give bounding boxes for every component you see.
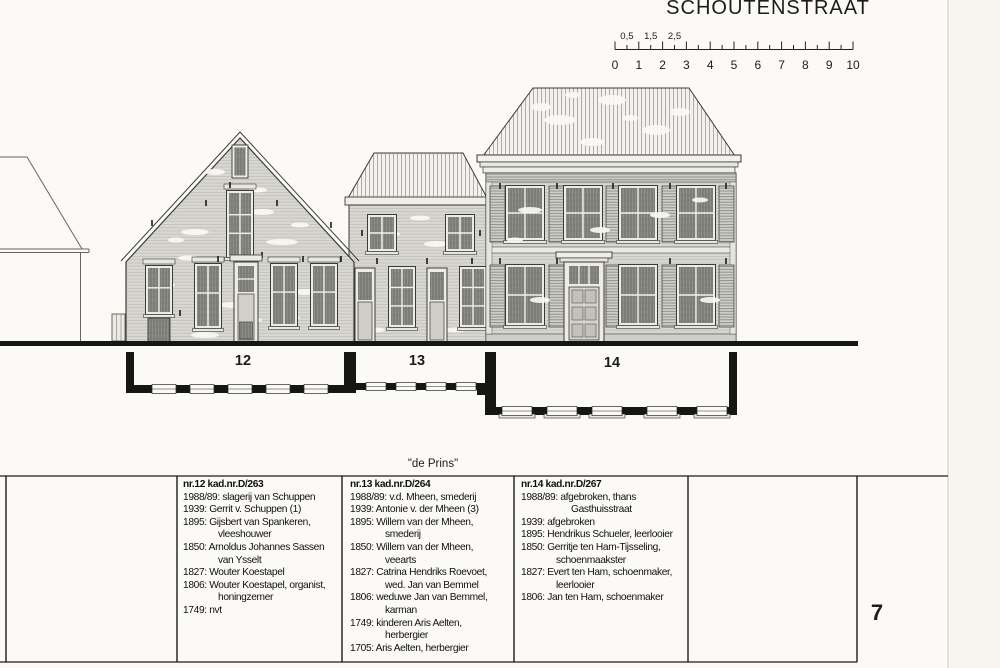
history-column-header: nr.14 kad.nr.D/267 [521, 479, 685, 492]
scale-bar-icon: 0123456789100,51,52,5 [612, 31, 860, 72]
ground-line [0, 341, 858, 346]
history-column-13: nr.13 kad.nr.D/264 1988/89: v.d. Mheen, … [350, 479, 508, 655]
window-sill [562, 241, 605, 244]
ruler-number: 3 [683, 58, 690, 72]
page-edge [948, 0, 1000, 668]
ruler-number: 8 [802, 58, 809, 72]
ruler-number: 0 [612, 58, 619, 72]
window-sill [309, 327, 340, 330]
door-panel [585, 324, 596, 337]
history-line: van Ysselt [218, 555, 335, 568]
shutter [662, 265, 677, 327]
window-sill [269, 327, 300, 330]
window-lintel [143, 259, 175, 264]
shutter [549, 186, 564, 242]
history-line: schoenmaakster [556, 555, 685, 568]
scan-streak [544, 115, 576, 125]
ruler-number: 6 [754, 58, 761, 72]
scan-streak [168, 238, 184, 243]
window-sill [617, 241, 660, 244]
door-panel [572, 307, 583, 320]
door-panel [430, 302, 444, 340]
scan-streak [191, 332, 219, 338]
scan-streak [622, 115, 638, 121]
street-title: SCHOUTENSTRAAT [666, 0, 870, 19]
door-panel [358, 302, 372, 340]
history-line: vleeshouwer [218, 529, 335, 542]
adjacent-building-outline [0, 157, 89, 341]
history-line: 1850: Gerritje ten Ham-Tijsseling, [521, 542, 685, 555]
ruler-half-label: 1,5 [644, 31, 657, 42]
scan-streak [518, 207, 542, 213]
history-column-header: nr.13 kad.nr.D/264 [350, 479, 508, 492]
history-line: 1988/89: v.d. Mheen, smederij [350, 492, 508, 505]
history-line: veearts [385, 555, 508, 568]
building-14-elevation [477, 88, 741, 342]
scan-streak [507, 238, 523, 243]
history-line: 1806: weduwe Jan van Bemmel, [350, 592, 508, 605]
scan-streak [642, 125, 670, 135]
window-sill [675, 326, 718, 329]
history-line: 1988/89: slagerij van Schuppen [183, 492, 335, 505]
scan-streak [410, 216, 430, 221]
door [230, 255, 262, 342]
history-line: karman [385, 605, 508, 618]
shutter [719, 265, 734, 327]
frieze-band [486, 173, 736, 182]
scan-streak [580, 138, 604, 146]
scan-streak [670, 108, 690, 116]
history-line: 1850: Willem van der Mheen, [350, 542, 508, 555]
ruler-number: 4 [707, 58, 714, 72]
window-sill [675, 241, 718, 244]
scan-streak [692, 198, 708, 203]
history-line: 1749: kinderen Aris Aelten, [350, 618, 508, 631]
history-line: 1827: Wouter Koestapel [183, 567, 335, 580]
window-sill [504, 326, 547, 329]
scan-streak [590, 227, 610, 233]
ruler-number: 9 [826, 58, 833, 72]
history-line: 1895: Hendrikus Schueler, leerlooier [521, 529, 685, 542]
building-12-elevation [112, 132, 359, 342]
plan-number-14: 14 [604, 355, 620, 371]
history-line: herbergier [385, 630, 508, 643]
scan-streak [266, 239, 298, 245]
plinth [486, 334, 736, 342]
history-line: Gasthuisstraat [571, 504, 685, 517]
scan-streak [650, 212, 670, 218]
drawing-shape [235, 148, 246, 176]
history-line: 1827: Catrina Hendriks Roevoet, [350, 567, 508, 580]
window-lintel [192, 257, 224, 262]
history-line: honingzemer [218, 592, 335, 605]
window-sill [617, 326, 660, 329]
page-number: 7 [871, 600, 883, 625]
door-glass [430, 272, 444, 300]
scan-streak [598, 95, 626, 105]
ruler-half-label: 0,5 [620, 31, 633, 42]
floor-plans: 12 13 14 [126, 352, 737, 418]
history-line: 1705: Aris Aelten, herbergier [350, 643, 508, 656]
shutter [490, 186, 505, 242]
history-line: smederij [385, 529, 508, 542]
window-lintel [308, 257, 340, 262]
ruler-number: 7 [778, 58, 785, 72]
ruler-number: 10 [846, 58, 860, 72]
scan-streak [700, 297, 720, 303]
history-line: 1827: Evert ten Ham, schoenmaker, [521, 567, 685, 580]
house-name-label: "de Prins" [408, 458, 458, 470]
history-line: 1806: Jan ten Ham, schoenmaker [521, 592, 685, 605]
ruler-half-label: 2,5 [668, 31, 681, 42]
door-panel [585, 290, 596, 303]
history-line: wed. Jan van Bemmel [385, 580, 508, 593]
shutter [549, 265, 564, 327]
window-sill [444, 252, 477, 255]
plan-number-13: 13 [409, 353, 425, 369]
scan-streak [181, 229, 209, 235]
ruler-number: 5 [731, 58, 738, 72]
scan-streak [531, 103, 551, 111]
history-line: 1988/89: afgebroken, thans [521, 492, 685, 505]
window-sill [458, 328, 489, 331]
door-glass [358, 272, 372, 300]
door-panel [572, 290, 583, 303]
door-panel [572, 324, 583, 337]
door-panel [585, 307, 596, 320]
scan-streak [424, 241, 448, 247]
window-sill [387, 328, 418, 331]
window-sill [366, 252, 399, 255]
building-13-elevation [345, 153, 489, 342]
scan-streak [565, 92, 581, 98]
door [556, 252, 612, 342]
ruler-number: 2 [659, 58, 666, 72]
history-line: 1850: Arnoldus Johannes Sassen [183, 542, 335, 555]
window-sill [193, 329, 224, 332]
cornice [477, 155, 741, 162]
history-column-14: nr.14 kad.nr.D/267 1988/89: afgebroken, … [521, 479, 685, 605]
history-line: 1806: Wouter Koestapel, organist, [183, 580, 335, 593]
window-lintel [224, 184, 256, 189]
history-line: leerlooier [556, 580, 685, 593]
window-lintel [268, 257, 300, 262]
scan-streak [530, 297, 550, 303]
garden-wall [112, 314, 125, 341]
cellar-door [148, 318, 170, 342]
history-line: 1939: Antonie v. der Mheen (3) [350, 504, 508, 517]
shutter [490, 265, 505, 327]
history-line: 1749: nvt [183, 605, 335, 618]
history-line: 1939: Gerrit v. Schuppen (1) [183, 504, 335, 517]
history-line: 1895: Willem van der Mheen, [350, 517, 508, 530]
window-sill [144, 315, 175, 318]
shutter [719, 186, 734, 242]
history-line: 1939: afgebroken [521, 517, 685, 530]
scan-streak [205, 169, 225, 175]
scan-streak [291, 223, 309, 228]
history-column-12: nr.12 kad.nr.D/263 1988/89: slagerij van… [183, 479, 335, 618]
history-column-header: nr.12 kad.nr.D/263 [183, 479, 335, 492]
history-line: 1895: Gijsbert van Spankeren, [183, 517, 335, 530]
plan-number-12: 12 [235, 353, 251, 369]
ruler-number: 1 [635, 58, 642, 72]
